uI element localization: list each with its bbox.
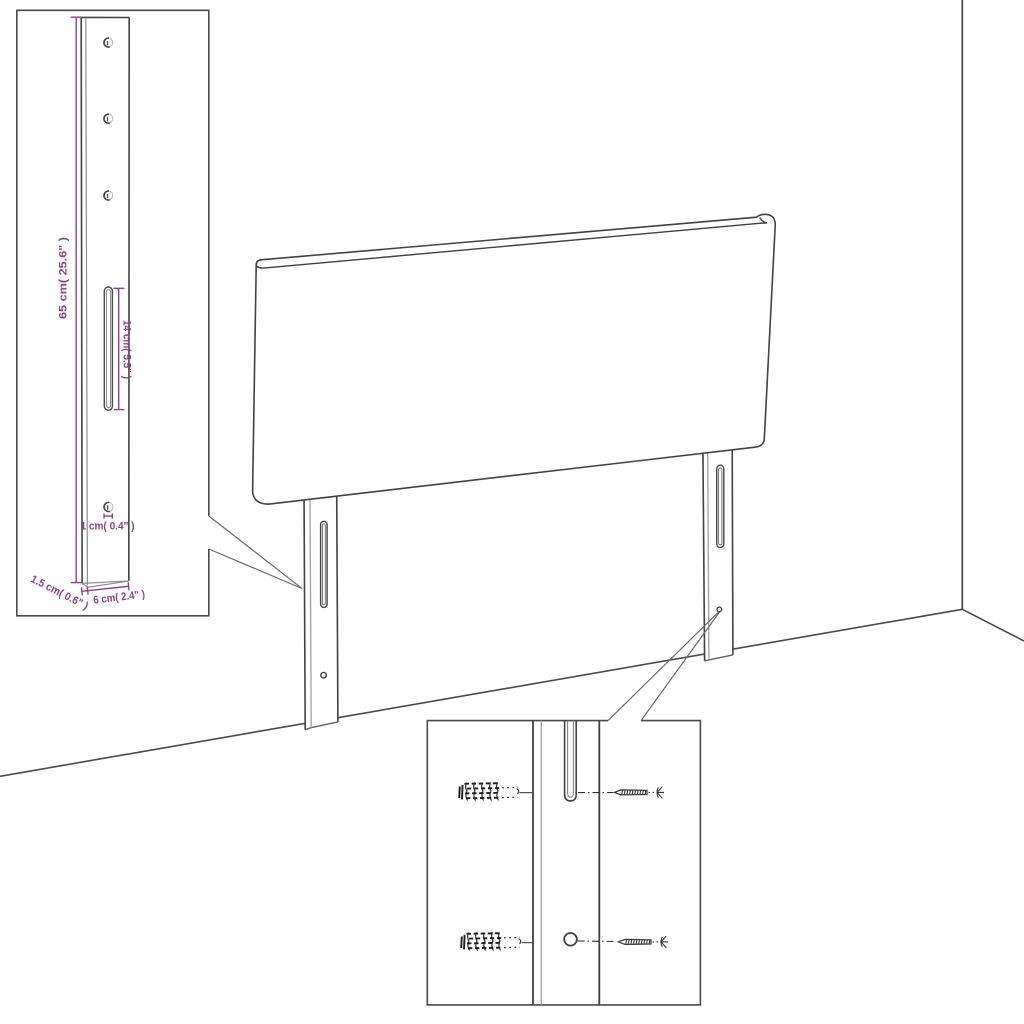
svg-text:65 cm( 25.6" ): 65 cm( 25.6" ): [57, 237, 69, 319]
svg-text:1 cm( 0.4" ): 1 cm( 0.4" ): [81, 521, 135, 533]
svg-text:14 cm( 5.5" ): 14 cm( 5.5" ): [121, 320, 133, 379]
